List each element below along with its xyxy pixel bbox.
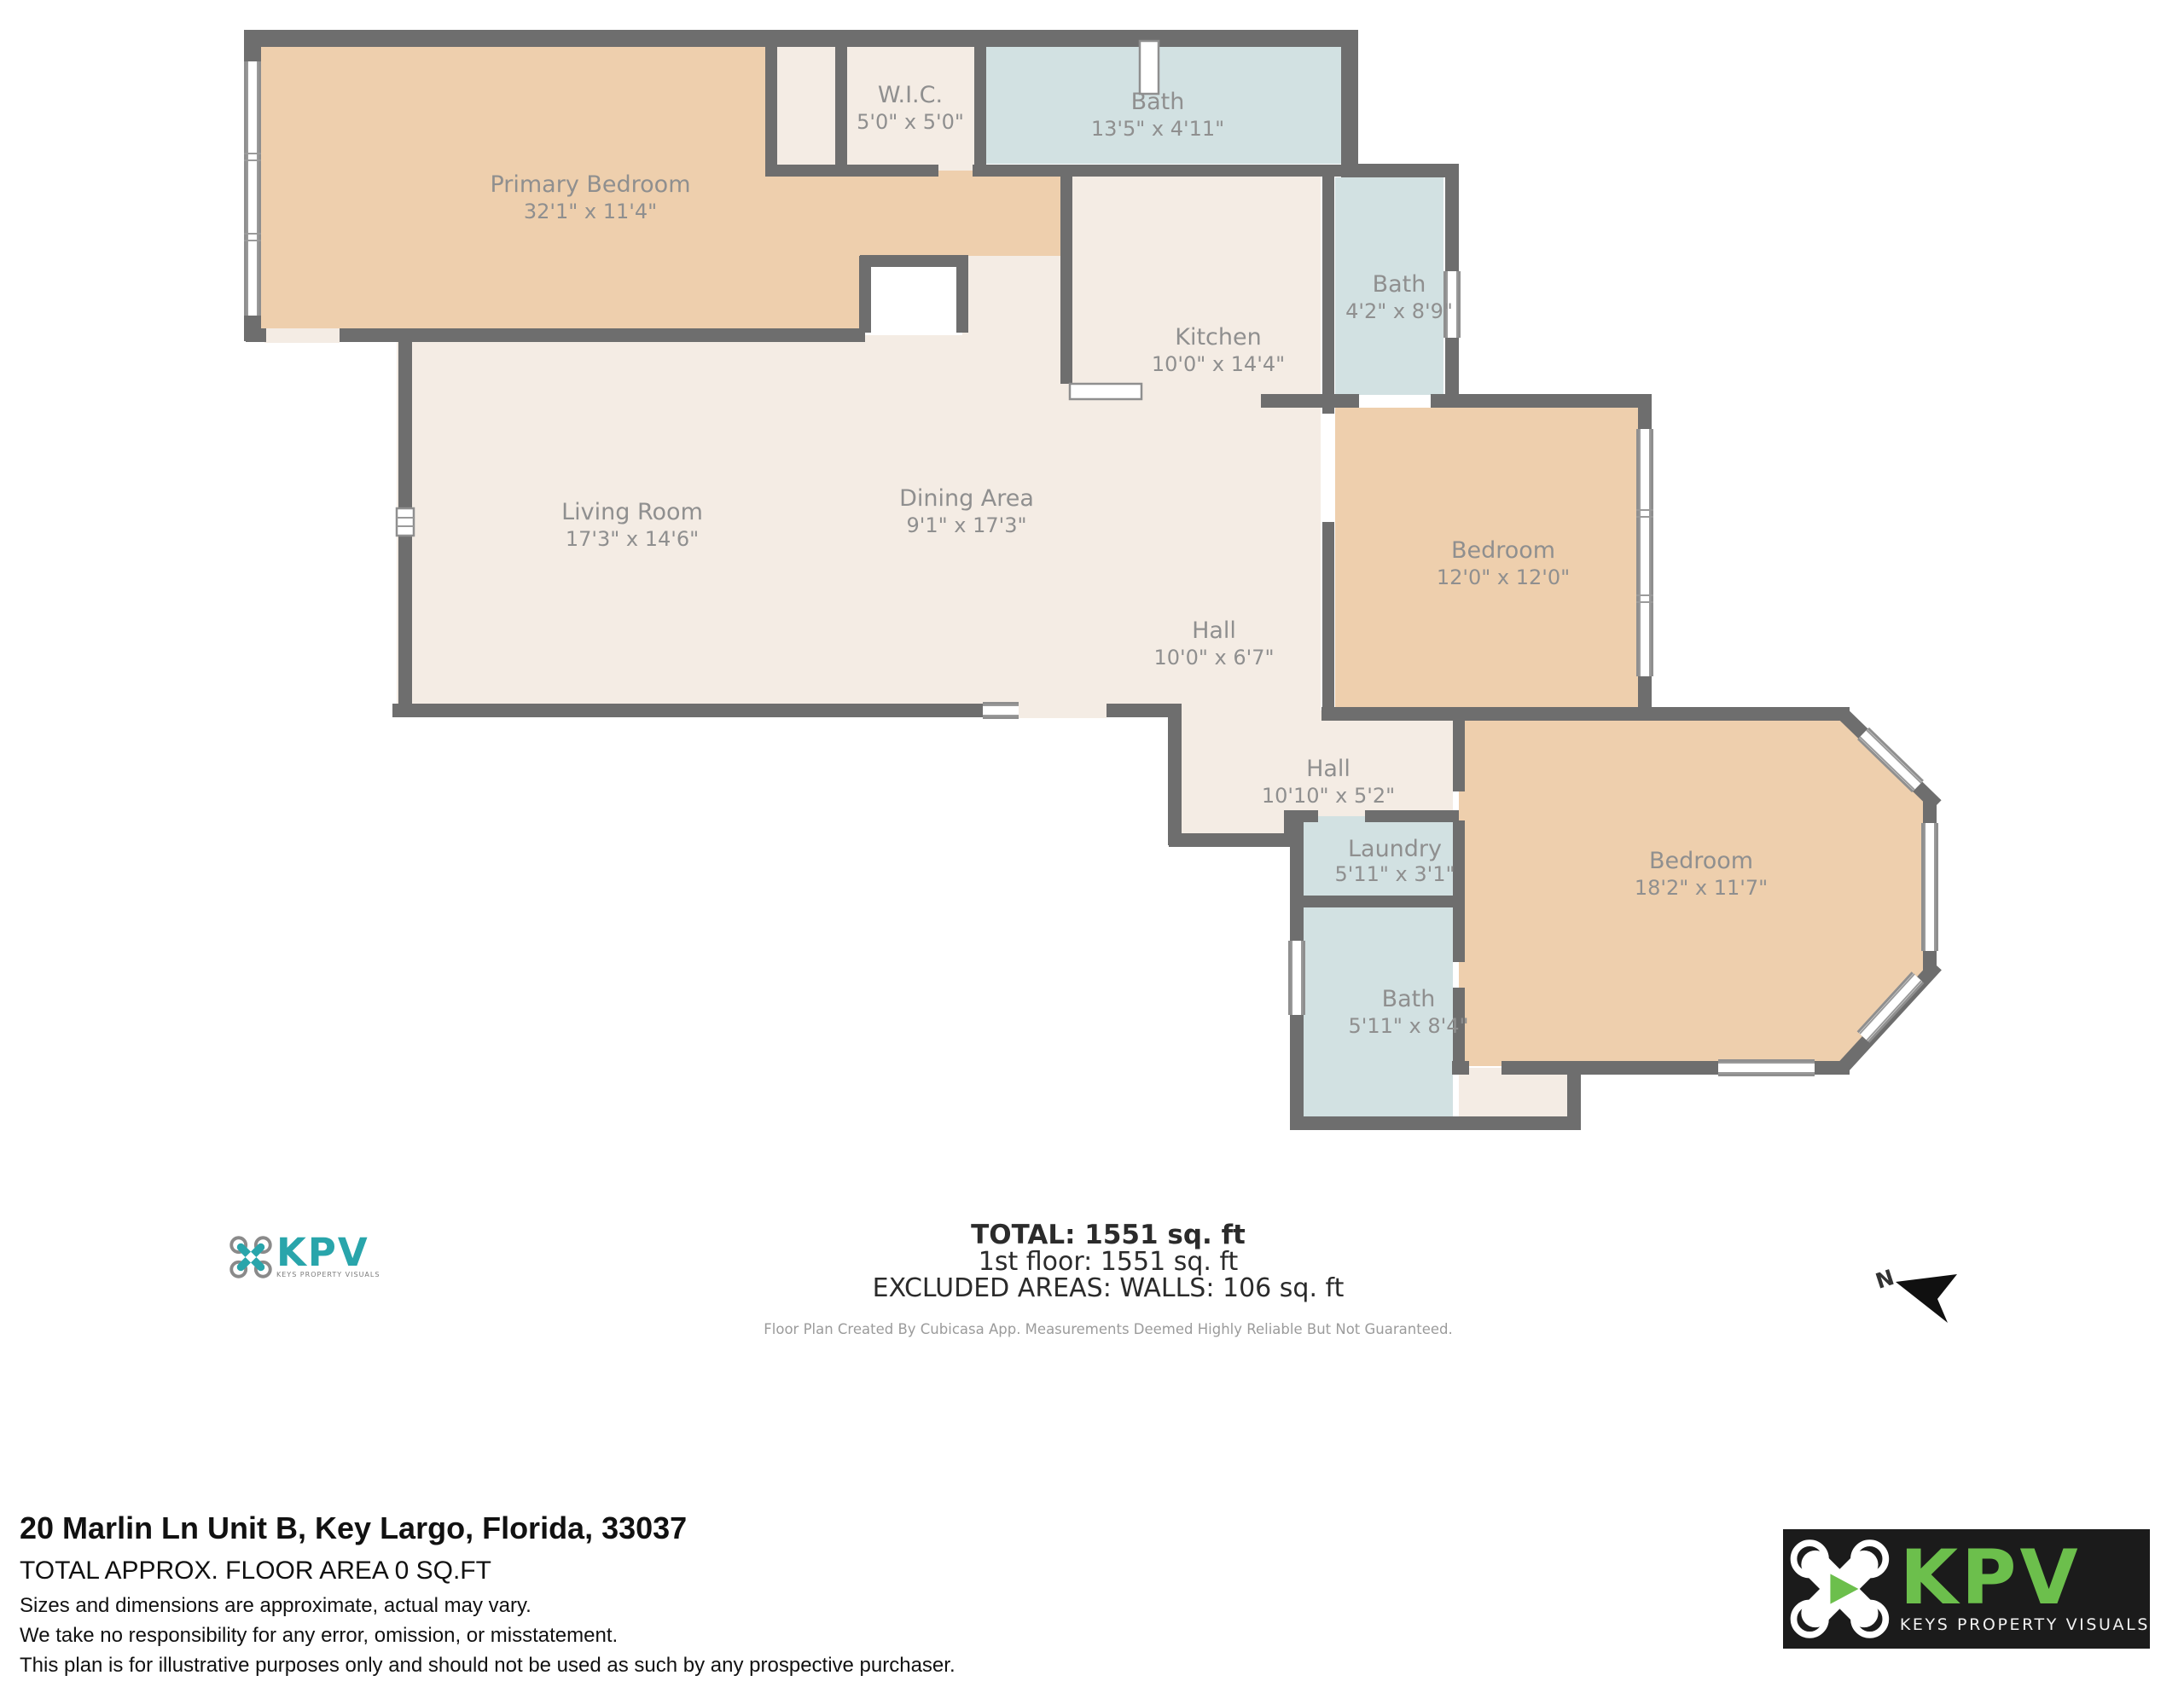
living-dining-floor xyxy=(397,335,1169,716)
total-area: TOTAL: 1551 sq. ft xyxy=(764,1221,1452,1249)
room-label: Bath xyxy=(1131,89,1185,115)
kpv-logo-tagline: KEYS PROPERTY VISUALS xyxy=(276,1271,380,1278)
window-bedroom2-bottom xyxy=(1718,1063,1815,1073)
kpv-logo-small: KPV KEYS PROPERTY VISUALS xyxy=(229,1235,380,1279)
kpv-logo-text: KPV xyxy=(276,1235,380,1271)
disclaimer-line: This plan is for illustrative purposes o… xyxy=(20,1650,955,1680)
kitchen-door-leaf xyxy=(1070,384,1141,399)
window-living-bottom xyxy=(983,705,1019,716)
room-dims: 32'1" x 11'4" xyxy=(524,200,657,223)
room-fills xyxy=(260,47,1931,1119)
total-approx-area: TOTAL APPROX. FLOOR AREA 0 SQ.FT xyxy=(20,1557,955,1586)
excluded-area: EXCLUDED AREAS: WALLS: 106 sq. ft xyxy=(764,1275,1452,1302)
kpv-logo-tagline: KEYS PROPERTY VISUALS xyxy=(1900,1615,2150,1634)
living-left-door xyxy=(397,508,414,536)
room-dims: 4'2" x 8'9" xyxy=(1345,299,1453,323)
room-label: Laundry xyxy=(1348,836,1442,862)
room-label: Bedroom xyxy=(1649,848,1753,874)
room-label: W.I.C. xyxy=(878,82,943,108)
room-label: Living Room xyxy=(561,499,703,525)
area-summary: TOTAL: 1551 sq. ft 1st floor: 1551 sq. f… xyxy=(764,1221,1452,1337)
window-bath3-left xyxy=(1292,941,1302,1015)
plan-note: Floor Plan Created By Cubicasa App. Meas… xyxy=(764,1321,1452,1337)
property-address: 20 Marlin Ln Unit B, Key Largo, Florida,… xyxy=(20,1511,955,1545)
room-label: Hall xyxy=(1306,756,1350,782)
drone-icon xyxy=(1783,1533,1896,1645)
room-dims: 13'5" x 4'11" xyxy=(1091,117,1224,141)
room-dims: 17'3" x 14'6" xyxy=(566,527,699,551)
room-label: Bedroom xyxy=(1451,537,1555,564)
room-label: Bath xyxy=(1382,986,1436,1012)
footer-info: 20 Marlin Ln Unit B, Key Largo, Florida,… xyxy=(20,1511,955,1680)
room-label: Kitchen xyxy=(1175,324,1261,351)
first-floor-area: 1st floor: 1551 sq. ft xyxy=(764,1249,1452,1275)
room-dims: 5'0" x 5'0" xyxy=(857,110,964,134)
room-dims: 9'1" x 17'3" xyxy=(906,513,1026,537)
north-arrow: N xyxy=(1873,1265,1957,1323)
alcove-floor xyxy=(1459,1068,1574,1119)
disclaimer-line: We take no responsibility for any error,… xyxy=(20,1620,955,1650)
north-arrow-icon xyxy=(1896,1274,1957,1323)
kpv-logo-text: KPV xyxy=(1900,1544,2150,1612)
disclaimer-line: Sizes and dimensions are approximate, ac… xyxy=(20,1591,955,1620)
room-dims: 5'11" x 3'1" xyxy=(1334,862,1455,886)
room-label: Primary Bedroom xyxy=(490,171,690,198)
window-primary-left xyxy=(244,61,261,316)
room-label: Hall xyxy=(1192,617,1236,644)
room-dims: 10'10" x 5'2" xyxy=(1262,784,1395,808)
room-label: Dining Area xyxy=(899,485,1034,512)
primary-door-opening xyxy=(264,328,340,343)
room-dims: 5'11" x 8'4" xyxy=(1348,1014,1468,1038)
room-dims: 12'0" x 12'0" xyxy=(1437,565,1570,589)
floor-plan-page: Primary Bedroom 32'1" x 11'4" W.I.C. 5'0… xyxy=(0,0,2184,1687)
room-dims: 18'2" x 11'7" xyxy=(1635,876,1768,900)
living-door-opening xyxy=(1017,704,1107,718)
window-bedroom1-right xyxy=(1636,429,1653,676)
north-label: N xyxy=(1873,1265,1897,1294)
room-label: Bath xyxy=(1373,271,1426,298)
bath1-door-leaf xyxy=(1140,41,1159,94)
room-dims: 10'0" x 6'7" xyxy=(1153,646,1274,670)
floor-plan-drawing: Primary Bedroom 32'1" x 11'4" W.I.C. 5'0… xyxy=(0,0,2184,1687)
room-dims: 10'0" x 14'4" xyxy=(1152,352,1285,376)
drone-icon xyxy=(229,1235,273,1279)
wic-floor xyxy=(846,47,975,171)
window-bay-right xyxy=(1925,823,1935,951)
closet-nook-floor xyxy=(777,47,836,171)
kpv-logo-large: KPV KEYS PROPERTY VISUALS xyxy=(1783,1529,2150,1649)
